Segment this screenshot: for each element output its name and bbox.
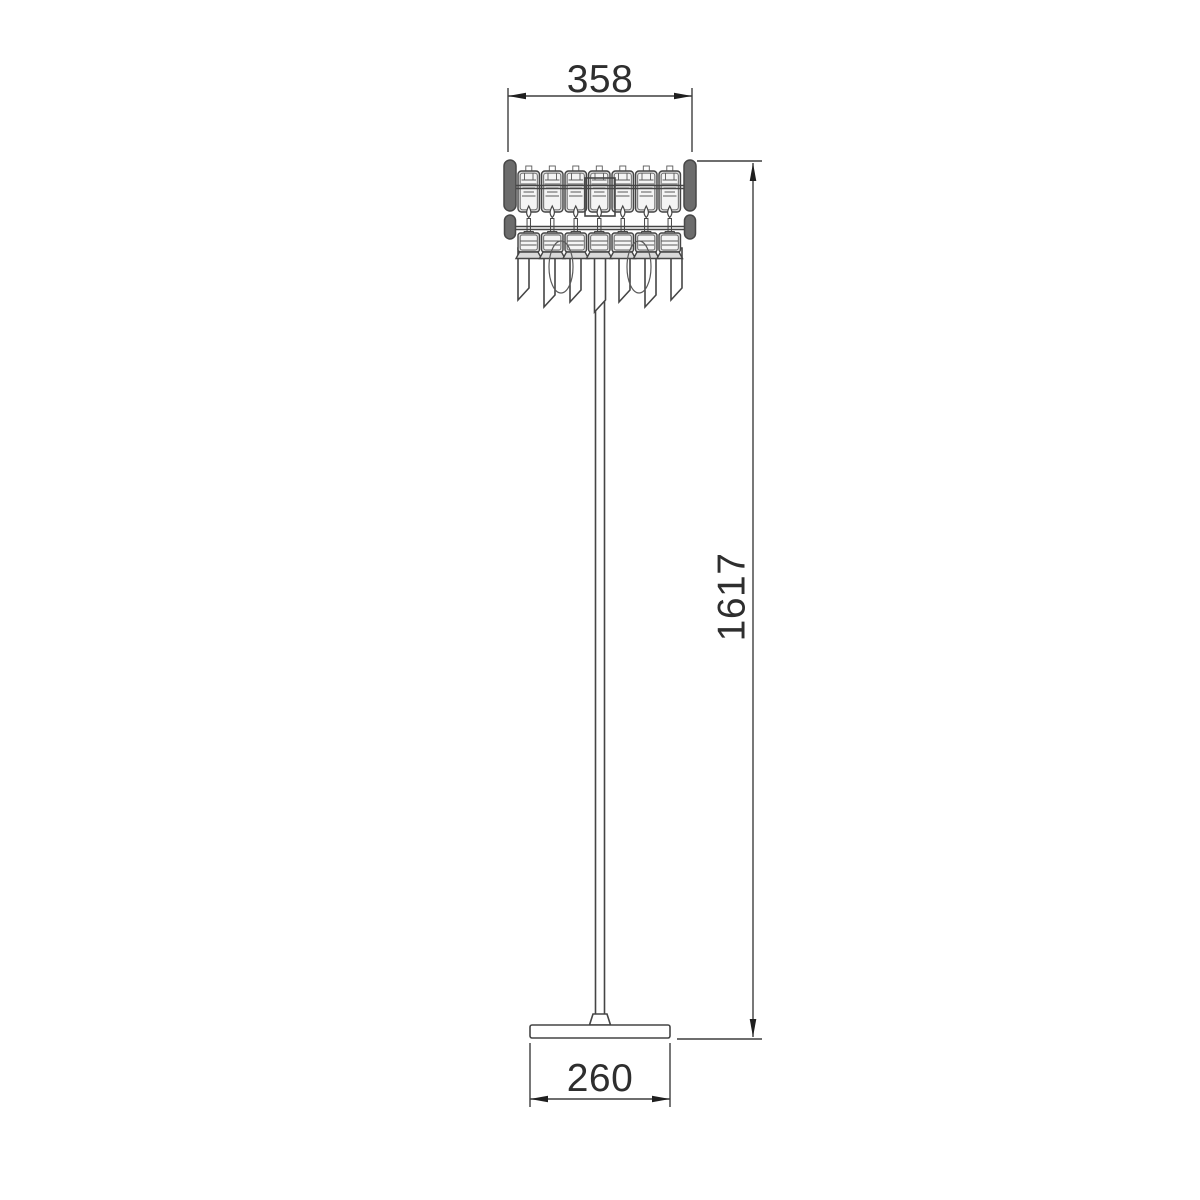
crystal-plates-bottom-row: [516, 233, 683, 259]
dim-shade-width-label: 358: [567, 58, 634, 101]
arrow-left-icon: [508, 93, 526, 100]
lamp-shade: [504, 160, 696, 312]
crystal-plate: [657, 233, 683, 259]
dim-total-height: 1617: [677, 161, 762, 1039]
technical-drawing-page: 358 1617 260: [0, 0, 1200, 1200]
dim-base-width: 260: [530, 1043, 670, 1107]
arrow-left-icon: [530, 1096, 548, 1103]
lamp-pole: [596, 236, 605, 1018]
arrow-down-icon: [750, 1019, 757, 1037]
pole-base-joint: [590, 1014, 611, 1025]
dim-base-width-label: 260: [567, 1057, 634, 1100]
base-plate: [530, 1025, 670, 1038]
crystal-plate: [563, 233, 589, 259]
crystal-plate: [516, 233, 542, 259]
crystal-plate: [587, 233, 613, 259]
arrow-up-icon: [750, 163, 757, 181]
crystal-plate: [540, 233, 566, 259]
dim-total-height-label: 1617: [711, 553, 754, 642]
floor-lamp-technical-drawing: 358 1617 260: [0, 0, 1200, 1200]
arrow-right-icon: [674, 93, 692, 100]
arrow-right-icon: [652, 1096, 670, 1103]
left-side-capsules: [504, 160, 516, 239]
right-side-capsules: [684, 160, 696, 239]
dim-shade-width: 358: [508, 58, 692, 152]
